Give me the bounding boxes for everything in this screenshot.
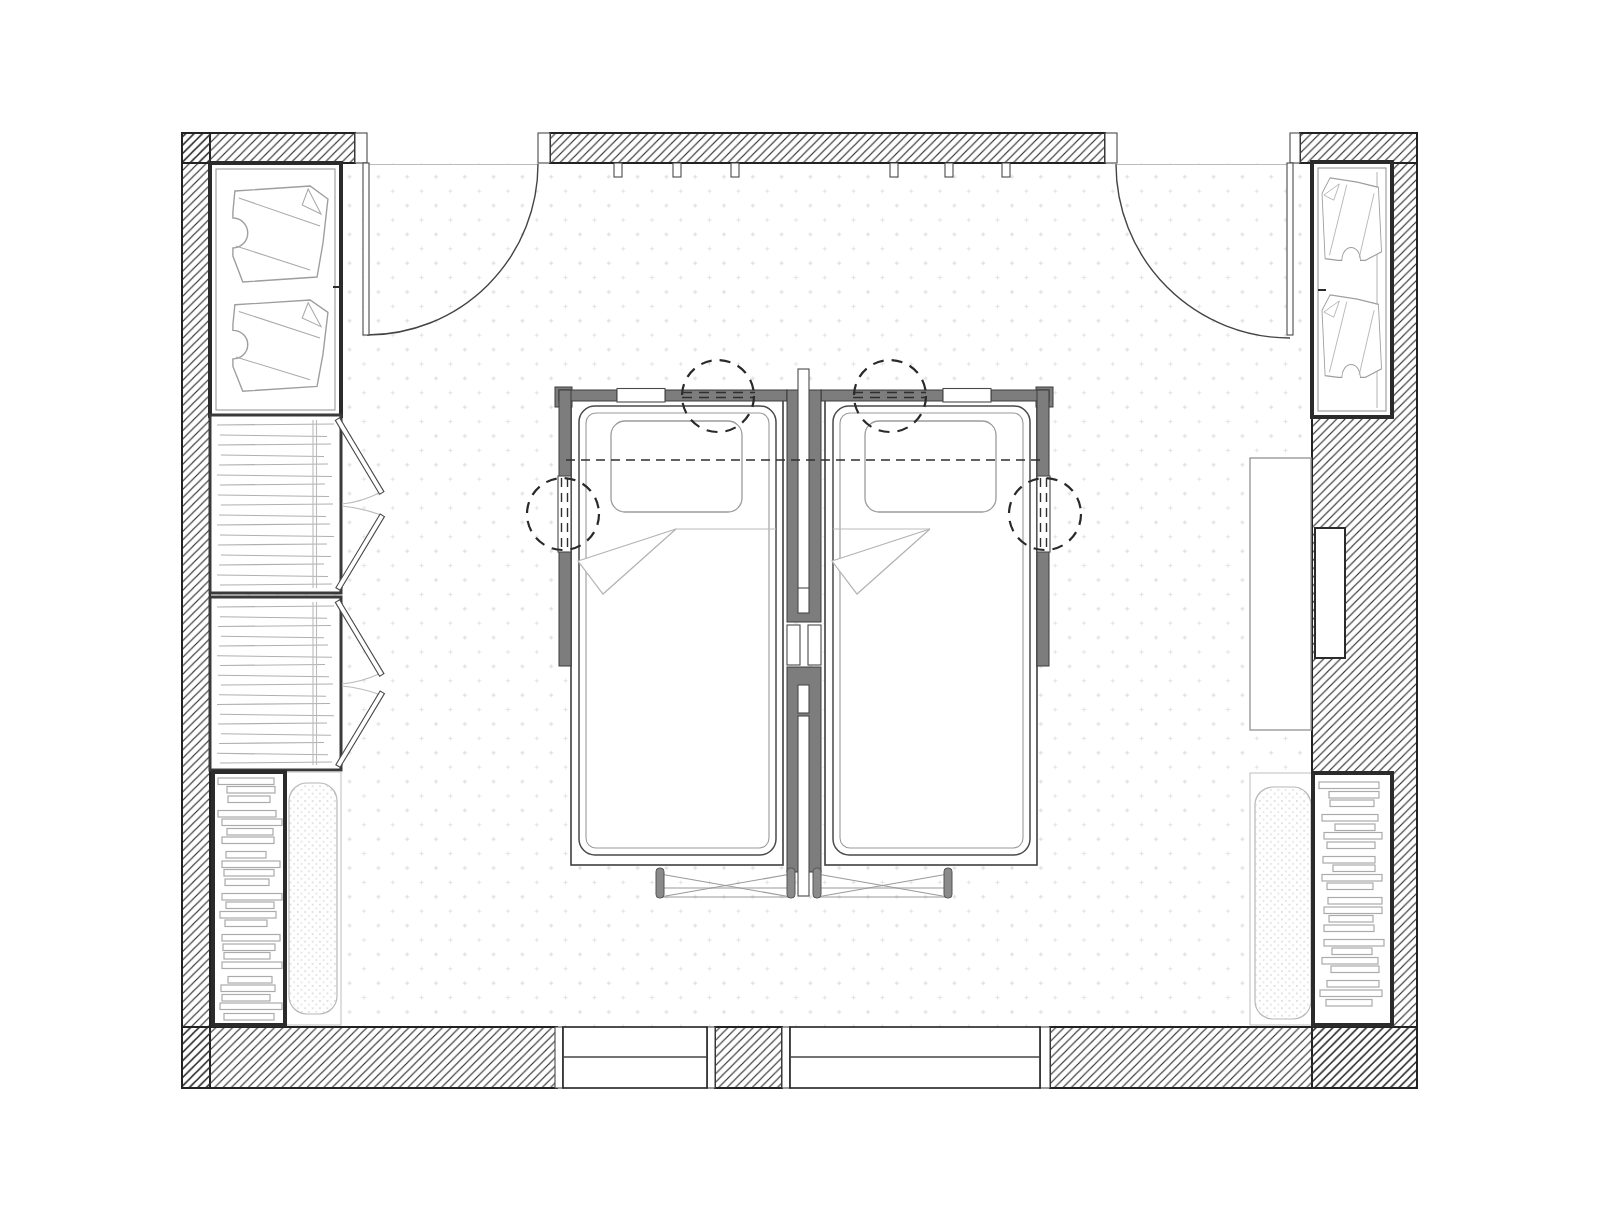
wall-top-left — [182, 133, 355, 163]
book — [1329, 792, 1379, 799]
book — [225, 920, 267, 927]
curtain-hook-tab — [1002, 163, 1010, 177]
door-leaf — [1287, 163, 1293, 335]
book — [1327, 842, 1375, 849]
book — [1329, 916, 1373, 923]
book — [1322, 958, 1378, 965]
bookshelf-right — [1313, 773, 1392, 1025]
book — [1324, 833, 1382, 840]
book — [224, 870, 274, 877]
book — [222, 935, 280, 942]
book — [218, 778, 274, 785]
bench-left — [285, 772, 341, 1025]
desk — [1250, 458, 1311, 730]
shirt-icon — [1322, 295, 1382, 378]
wall-bottom-pier — [715, 1027, 782, 1088]
book — [222, 819, 282, 826]
window-jamb — [707, 1027, 715, 1088]
shirt-icon — [233, 186, 328, 282]
book — [220, 912, 276, 919]
door-jamb — [1105, 133, 1117, 163]
partition-head-wall — [821, 390, 943, 401]
bed-left — [571, 399, 783, 865]
bench-right — [1250, 773, 1315, 1025]
book — [1320, 990, 1382, 997]
book — [1324, 925, 1374, 932]
book — [220, 1003, 282, 1010]
book — [222, 861, 280, 868]
partition-opening — [617, 389, 665, 403]
book — [228, 796, 270, 803]
book — [226, 852, 266, 859]
bench-rail — [944, 868, 952, 898]
window-1 — [555, 1027, 715, 1088]
book — [222, 894, 282, 901]
book — [1327, 981, 1379, 988]
wall-bottom-right — [1050, 1027, 1417, 1088]
partition-side-wall — [1037, 390, 1049, 478]
desk-wall-niche — [1315, 528, 1345, 658]
bench-cushion — [1255, 787, 1311, 1019]
wall-top-right — [1300, 133, 1417, 163]
book — [227, 829, 273, 836]
divider-slot — [798, 685, 809, 713]
partition-opening — [1037, 476, 1050, 552]
door-jamb — [538, 133, 550, 163]
book — [1324, 940, 1384, 947]
book — [1323, 857, 1375, 864]
book — [1322, 875, 1382, 882]
pillow — [611, 421, 742, 512]
door-jamb — [1290, 133, 1300, 163]
window-jamb — [555, 1027, 563, 1088]
book — [1319, 782, 1379, 789]
book — [1328, 898, 1382, 905]
curtain-hook-tab — [673, 163, 681, 177]
partition-side-wall — [1037, 551, 1049, 666]
wall-bottom-left — [182, 1027, 557, 1088]
book — [1331, 966, 1379, 973]
divider-channel — [798, 716, 809, 896]
book — [222, 962, 282, 969]
divider-channel — [798, 369, 809, 613]
book — [1332, 948, 1372, 955]
bench-rail — [787, 868, 795, 898]
book — [222, 837, 274, 844]
bench-rail — [656, 868, 664, 898]
door-leaf — [363, 163, 369, 335]
book — [1322, 815, 1378, 822]
curtain-hook-tab — [614, 163, 622, 177]
partition-opening — [943, 389, 991, 403]
book — [1326, 1000, 1372, 1007]
wall-top-center — [550, 133, 1105, 163]
window-2 — [782, 1027, 1050, 1088]
book — [227, 787, 275, 794]
wardrobe-top-left — [210, 163, 341, 416]
book — [228, 977, 272, 984]
bench-cushion — [289, 783, 337, 1014]
curtain-hook-tab — [731, 163, 739, 177]
book — [1333, 865, 1375, 872]
curtain-hook-tab — [890, 163, 898, 177]
floor-plan-drawing — [0, 0, 1600, 1223]
divider-notch — [787, 625, 800, 665]
partition-side-wall — [559, 551, 571, 666]
window-jamb — [782, 1027, 790, 1088]
book — [223, 944, 275, 951]
book — [1335, 824, 1375, 831]
book — [1327, 883, 1373, 890]
book — [225, 879, 269, 886]
curtain-hook-tab — [945, 163, 953, 177]
floor-plan-page — [0, 0, 1600, 1223]
partition-opening — [558, 476, 571, 552]
book — [1324, 907, 1382, 914]
book — [221, 985, 275, 992]
book — [218, 811, 276, 818]
divider-notch — [808, 625, 821, 665]
window-jamb — [1040, 1027, 1050, 1088]
wardrobe-top-right — [1312, 162, 1392, 417]
bed-right — [825, 399, 1037, 865]
pillow — [865, 421, 996, 512]
book — [222, 995, 270, 1002]
book — [224, 953, 270, 960]
book — [224, 1014, 274, 1021]
shirt-icon — [1322, 178, 1382, 261]
door-jamb — [355, 133, 367, 163]
partition-side-wall — [559, 390, 571, 478]
book — [226, 902, 274, 909]
book — [1330, 800, 1374, 807]
closet-frame — [210, 597, 341, 770]
bench-rail — [813, 868, 821, 898]
wall-left — [182, 133, 210, 1088]
shirt-icon — [233, 300, 328, 391]
bookshelf-left — [213, 772, 285, 1025]
